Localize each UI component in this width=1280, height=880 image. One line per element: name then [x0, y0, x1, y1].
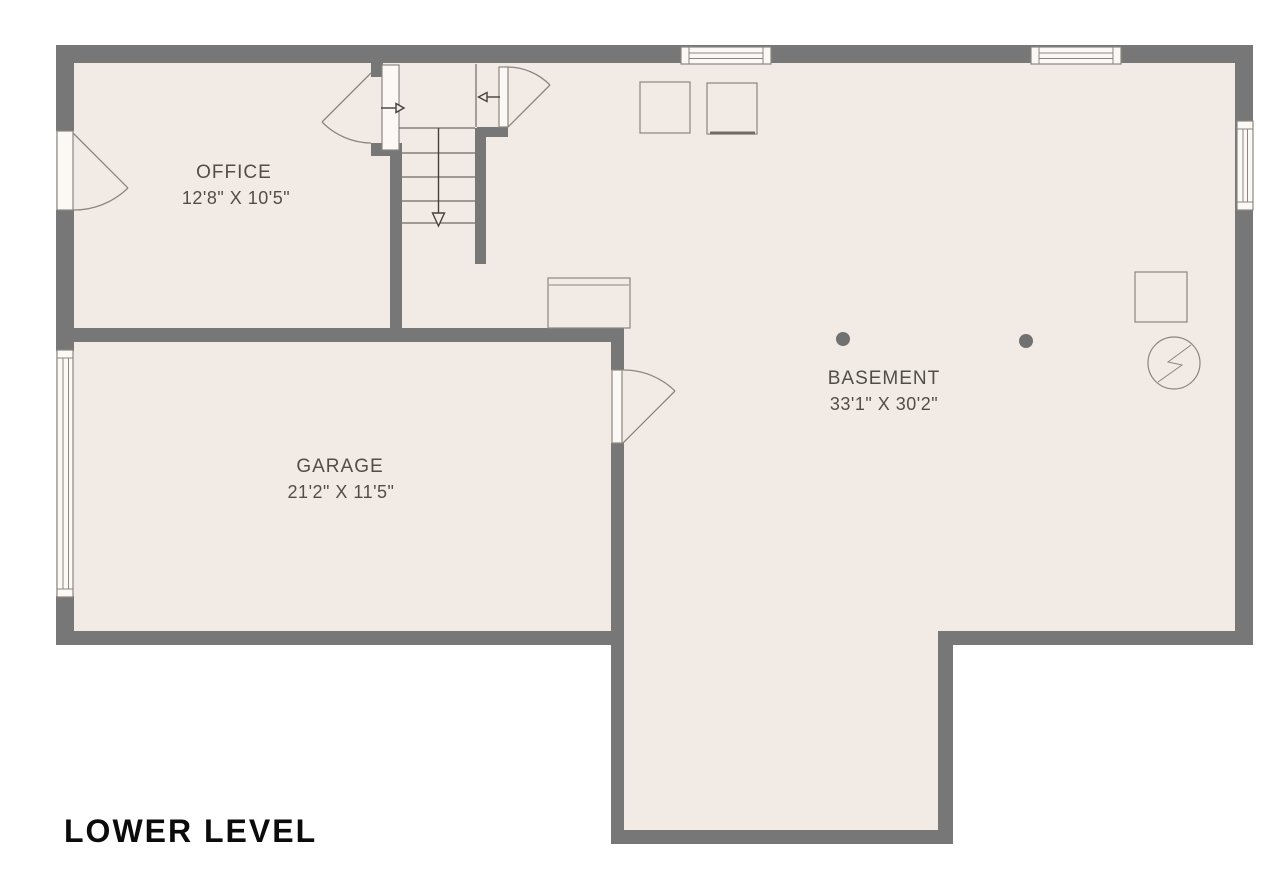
wall-stair-top-stub — [371, 63, 383, 77]
support-post-left — [836, 332, 850, 346]
wall-garage-bottom — [56, 631, 624, 645]
floor-plan-drawing: OFFICE 12'8" X 10'5" GARAGE 21'2" X 11'5… — [0, 0, 1280, 880]
wall-garage-right-lower-extension-left — [611, 443, 624, 844]
appliance-square-2 — [707, 83, 757, 134]
basement-dimensions: 33'1" X 30'2" — [830, 394, 938, 414]
cabinet-by-stairs — [548, 278, 630, 328]
window-basement-top-left — [681, 47, 771, 64]
office-dimensions: 12'8" X 10'5" — [182, 188, 290, 208]
appliance-square-1 — [640, 82, 690, 133]
garage-label: GARAGE — [296, 456, 383, 477]
office-label: OFFICE — [196, 162, 272, 183]
wall-extension-right — [938, 631, 953, 844]
electrical-meter-icon — [1148, 337, 1200, 389]
window-basement-right — [1237, 121, 1253, 210]
basement-label: BASEMENT — [828, 368, 941, 389]
support-post-right — [1019, 334, 1033, 348]
wall-basement-bottom — [938, 631, 1253, 645]
wall-stairwell-right — [475, 128, 486, 264]
garage-dimensions: 21'2" X 11'5" — [288, 482, 395, 502]
wall-left-office-upper — [56, 45, 74, 131]
floor-plan-page: OFFICE 12'8" X 10'5" GARAGE 21'2" X 11'5… — [0, 0, 1280, 880]
wall-office-right — [390, 156, 402, 328]
wall-extension-bottom — [611, 830, 953, 844]
window-basement-top-right — [1031, 47, 1121, 64]
page-title: LOWER LEVEL — [64, 813, 317, 849]
wall-office-garage-divider — [56, 328, 624, 342]
utility-square — [1135, 272, 1187, 322]
main-floor-slab — [56, 45, 1253, 645]
wall-garage-right-upper — [611, 342, 624, 370]
extension-floor-slab — [611, 630, 953, 844]
window-garage-left — [57, 350, 73, 597]
wall-left-office-lower — [56, 210, 74, 342]
